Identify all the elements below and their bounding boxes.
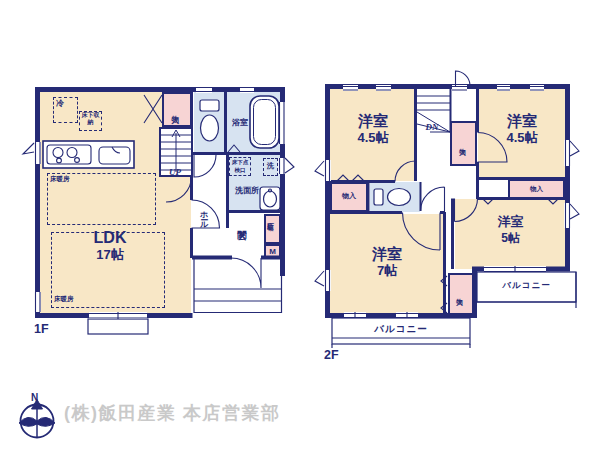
shoe-cabinet-label: 下駄箱 xyxy=(267,217,274,243)
floor-plan-canvas: 冷 床下収納 床暖房 床暖房 LDK 17帖 物入 UP 浴室 床下点検口 洗 … xyxy=(0,0,600,450)
company-name: (株)飯田産業 本店営業部 xyxy=(64,403,281,424)
closet-stairs-label: 物入 xyxy=(459,130,466,158)
entrance-label: 玄関 xyxy=(236,222,247,254)
closet-west-label: 物入 xyxy=(330,192,368,200)
bedroom-nw-label: 洋室 xyxy=(330,112,416,129)
stairs-dn-label: DN xyxy=(417,122,447,132)
ldk-size-label: 17帖 xyxy=(60,248,160,263)
balcony-south-label: バルコニー xyxy=(332,324,470,335)
floor-heating-lower-label: 床暖房 xyxy=(54,295,74,302)
shoe-cabinet-m-label: M xyxy=(264,247,281,256)
toilet-1f-icon xyxy=(200,100,219,141)
floor-heating-upper-label: 床暖房 xyxy=(50,175,70,182)
closet-east-label: 物入 xyxy=(508,185,565,192)
closet-center-label: 物入 xyxy=(456,280,463,308)
compass-north-label: N xyxy=(31,392,38,404)
stairs-up-label: UP xyxy=(162,167,188,177)
balcony-east-label: バルコニー xyxy=(477,281,576,291)
inspection-hatch-label: 床下点検口 xyxy=(230,159,251,174)
bedroom-se-label: 洋室 xyxy=(455,215,566,230)
compass-icon xyxy=(19,400,55,439)
bedroom-sw-size: 7帖 xyxy=(330,264,444,279)
bathroom-label: 浴室 xyxy=(225,118,255,127)
kitchen-counter xyxy=(43,141,134,168)
underfloor-storage-label: 床下収納 xyxy=(79,112,102,126)
porch-steps xyxy=(88,258,282,334)
floor2-label: 2F xyxy=(324,348,339,362)
closet-1f-label: 物入 xyxy=(170,96,179,124)
fridge-label: 冷 xyxy=(56,99,64,108)
bedroom-nw-size: 4.5帖 xyxy=(330,131,416,146)
laundry-label: 洗 xyxy=(263,162,278,170)
bedroom-ne-label: 洋室 xyxy=(478,112,566,129)
floor1-label: 1F xyxy=(34,322,49,336)
bedroom-ne-size: 4.5帖 xyxy=(478,131,566,146)
washroom-label: 洗面所 xyxy=(228,186,266,195)
bedroom-se-size: 5帖 xyxy=(455,232,566,246)
hall-label: ホール xyxy=(199,205,208,247)
toilet-2f-icon xyxy=(374,189,411,206)
bedroom-sw-label: 洋室 xyxy=(330,245,444,262)
ldk-label: LDK xyxy=(60,229,160,247)
